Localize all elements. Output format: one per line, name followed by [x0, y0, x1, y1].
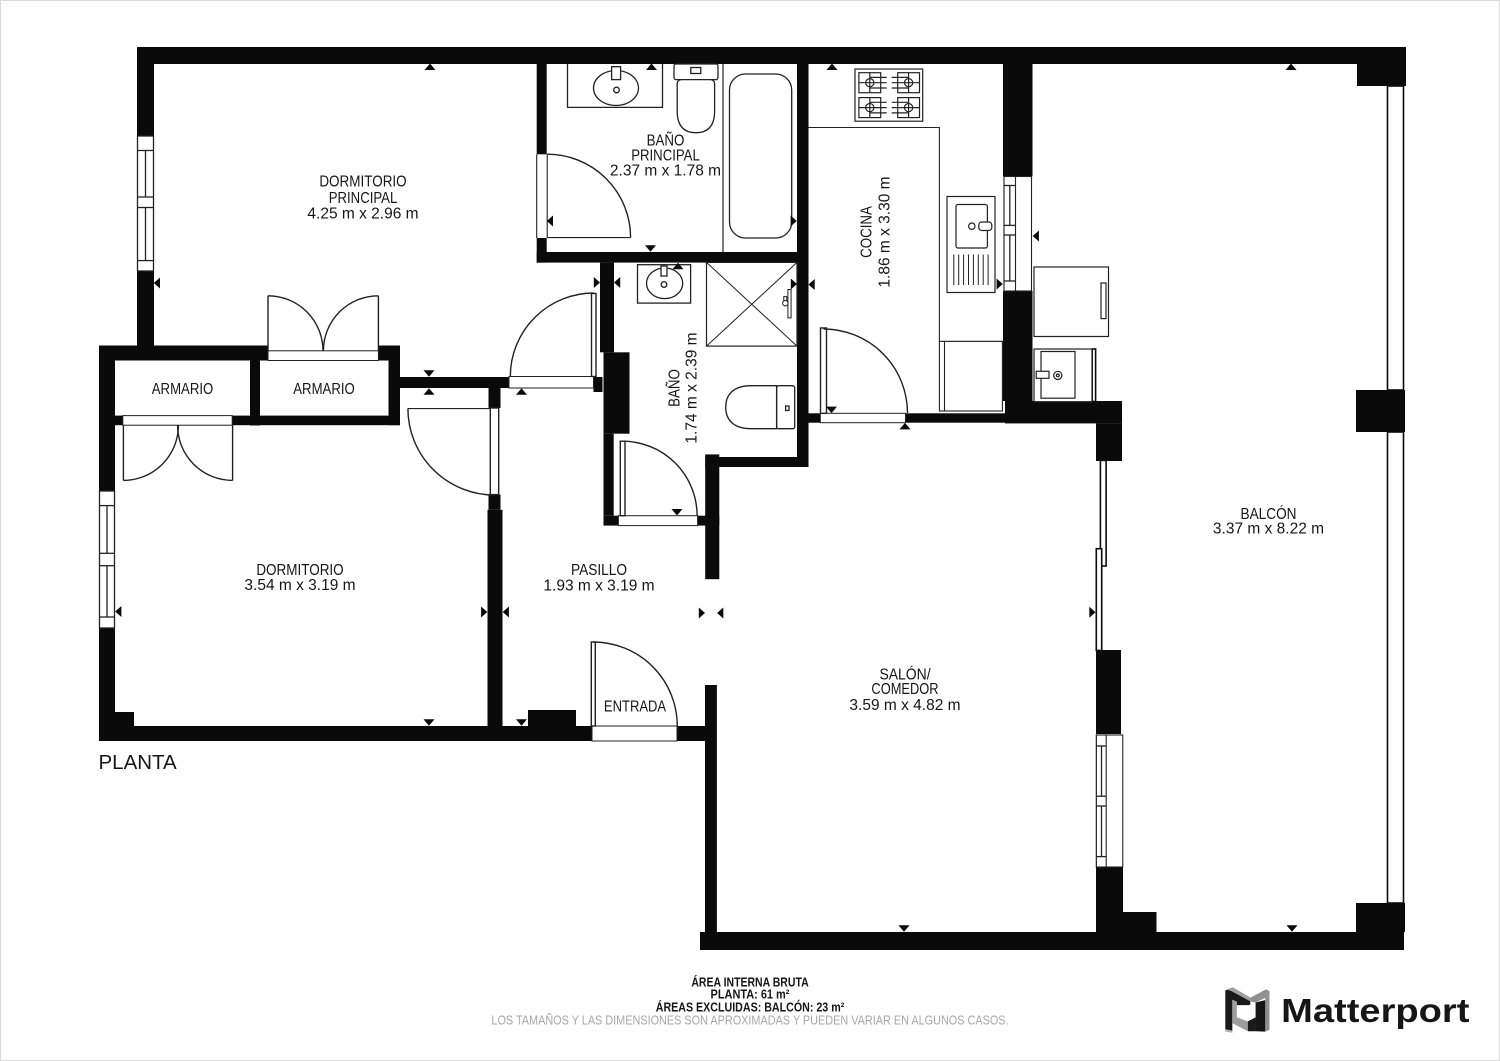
svg-text:Matterport: Matterport — [1281, 992, 1469, 1029]
svg-text:BAÑO: BAÑO — [666, 369, 684, 407]
svg-text:3.37 m x 8.22 m: 3.37 m x 8.22 m — [1213, 521, 1324, 538]
svg-text:2.37 m x 1.78 m: 2.37 m x 1.78 m — [610, 163, 721, 180]
svg-text:COCINA: COCINA — [859, 206, 876, 258]
svg-text:PLANTA: 61 m²: PLANTA: 61 m² — [711, 988, 790, 1002]
svg-text:PLANTA: PLANTA — [99, 751, 178, 774]
svg-text:3.59 m x 4.82 m: 3.59 m x 4.82 m — [849, 697, 960, 714]
svg-text:ENTRADA: ENTRADA — [604, 698, 667, 715]
svg-text:COMEDOR: COMEDOR — [871, 681, 938, 698]
svg-text:4.25 m x 2.96 m: 4.25 m x 2.96 m — [307, 205, 418, 222]
svg-text:1.74 m x 2.39 m: 1.74 m x 2.39 m — [684, 332, 701, 443]
svg-text:3.54 m x 3.19 m: 3.54 m x 3.19 m — [244, 577, 355, 594]
svg-text:ARMARIO: ARMARIO — [293, 381, 354, 398]
svg-text:1.86 m x 3.30 m: 1.86 m x 3.30 m — [877, 176, 894, 287]
svg-text:1.93 m x 3.19 m: 1.93 m x 3.19 m — [543, 577, 654, 594]
svg-text:ARMARIO: ARMARIO — [152, 381, 213, 398]
svg-text:DORMITORIO: DORMITORIO — [319, 173, 406, 190]
svg-text:LOS TAMAÑOS Y LAS DIMENSIONES: LOS TAMAÑOS Y LAS DIMENSIONES SON APROXI… — [491, 1014, 1008, 1028]
svg-text:ÁREAS EXCLUIDAS: BALCÓN: 23 m²: ÁREAS EXCLUIDAS: BALCÓN: 23 m² — [656, 1001, 845, 1015]
